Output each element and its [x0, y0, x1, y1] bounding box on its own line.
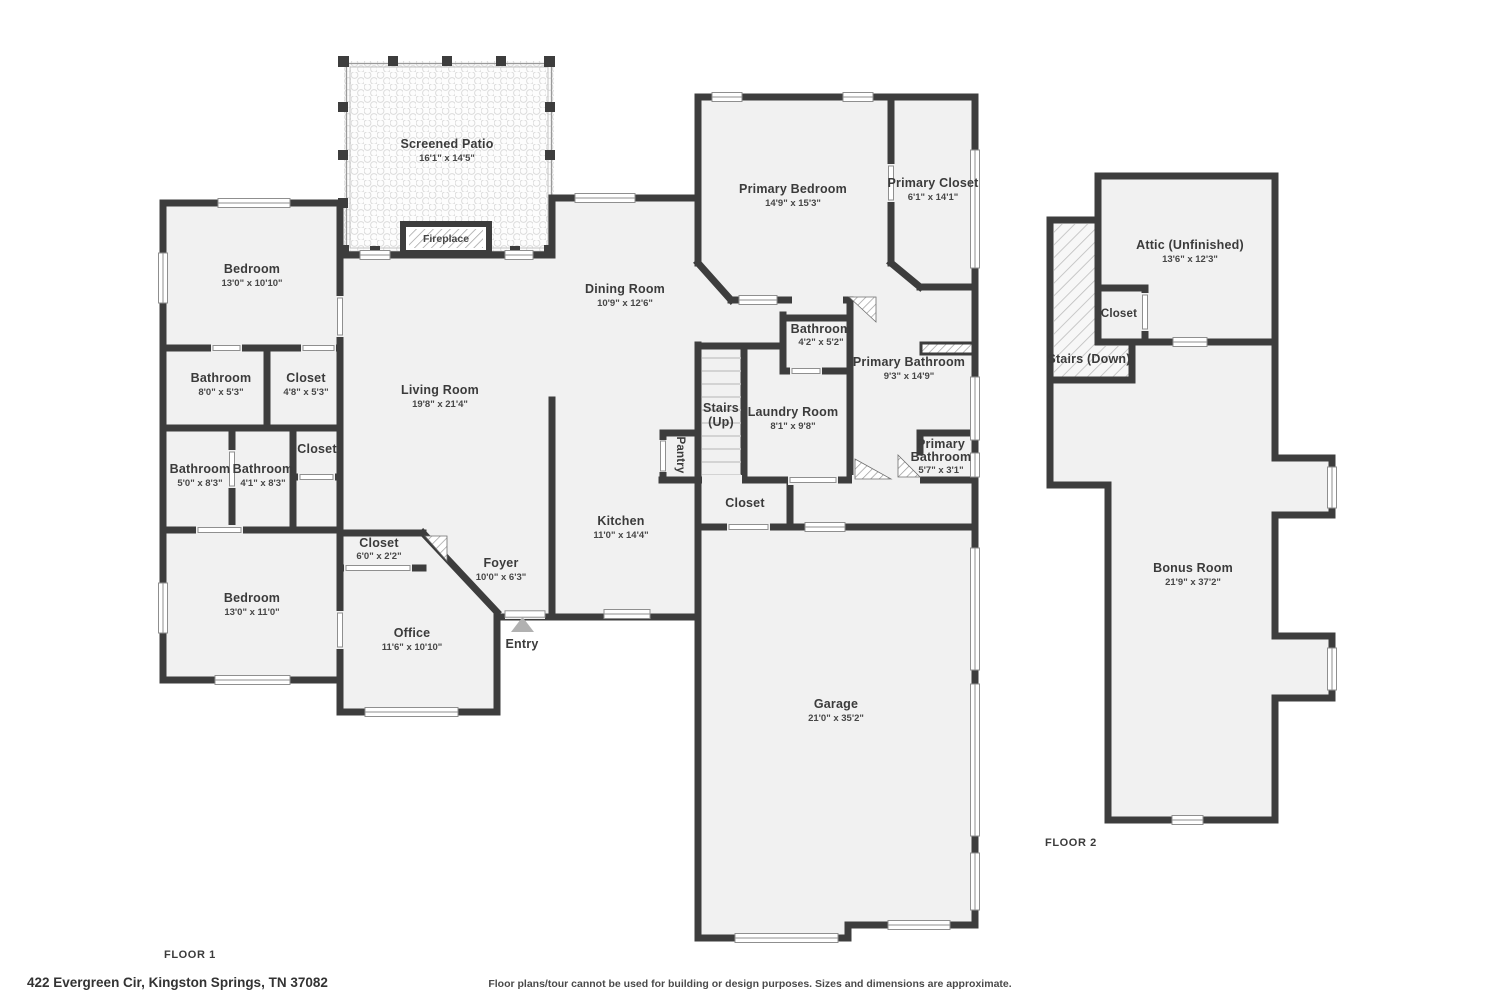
room-label: Dining Room — [585, 282, 665, 296]
room-bathroom-top: Bathroom 8'0" x 5'3" — [191, 371, 252, 398]
room-dims: 5'7" x 3'1" — [918, 465, 963, 476]
room-label: Primary Bathroom — [853, 355, 965, 369]
room-label: Bathroom — [191, 371, 252, 385]
floor1-label: FLOOR 1 — [164, 949, 216, 961]
window — [505, 251, 533, 260]
room-closet-hall: Closet — [725, 496, 765, 510]
window — [805, 523, 845, 532]
room-label: Living Room — [401, 383, 479, 397]
floor-plan-svg: Fireplace Screened Patio 16'1" x 14'5" B… — [0, 0, 1500, 999]
room-dims: 4'1" x 8'3" — [240, 478, 285, 489]
window — [712, 93, 742, 102]
room-dims: 13'0" x 11'0" — [224, 607, 279, 618]
room-dims: 21'9" x 37'2" — [1165, 577, 1221, 588]
room-dims: 21'0" x 35'2" — [808, 713, 864, 724]
room-dims: 10'0" x 6'3" — [476, 572, 527, 583]
window — [604, 610, 650, 619]
window — [971, 853, 980, 910]
room-dims: 4'2" x 5'2" — [798, 337, 843, 348]
room-closet-floor2: Closet — [1101, 308, 1137, 320]
room-bathroom-left: Bathroom 5'0" x 8'3" — [170, 462, 231, 489]
room-label: Bedroom — [224, 591, 280, 605]
room-dims: 6'0" x 2'2" — [356, 551, 401, 562]
room-bathroom-small: Bathroom 4'2" x 5'2" — [791, 322, 852, 348]
room-stairs-up: Stairs (Up) — [703, 401, 739, 429]
room-dims: 11'6" x 10'10" — [382, 642, 443, 653]
door-opening — [727, 522, 770, 532]
door-opening — [196, 525, 243, 535]
room-dims: 8'1" x 9'8" — [770, 421, 815, 432]
entry-label-group: Entry — [506, 637, 539, 651]
door-opening — [344, 563, 412, 573]
fireplace-label: Fireplace — [423, 233, 469, 245]
room-closet-top: Closet 4'8" x 5'3" — [283, 371, 328, 398]
door-opening — [298, 472, 335, 482]
floor2-plan: Attic (Unfinished) 13'6" x 12'3" Closet … — [1047, 176, 1336, 825]
room-living-room: Living Room 19'8" x 21'4" — [401, 383, 479, 410]
room-dims: 14'9" x 15'3" — [765, 198, 821, 209]
room-dims: 16'1" x 14'5" — [419, 153, 475, 164]
stairs-label: Stairs — [703, 401, 739, 415]
shower-pan — [921, 343, 973, 354]
room-label: Screened Patio — [400, 137, 493, 151]
property-address: 422 Evergreen Cir, Kingston Springs, TN … — [27, 975, 328, 990]
room-closet-mid: Closet — [297, 442, 337, 456]
fireplace: Fireplace — [403, 224, 489, 253]
floor2-label: FLOOR 2 — [1045, 837, 1097, 849]
room-label: Attic (Unfinished) — [1136, 238, 1244, 252]
window — [888, 921, 950, 930]
room-label: Bedroom — [224, 262, 280, 276]
window — [1328, 648, 1337, 690]
door-opening — [301, 343, 336, 353]
room-kitchen: Kitchen 11'0" x 14'4" — [593, 514, 648, 541]
room-label: Closet — [725, 496, 765, 510]
window — [971, 453, 980, 477]
door-opening — [788, 475, 838, 485]
floor1-plan: Fireplace Screened Patio 16'1" x 14'5" B… — [159, 56, 980, 943]
window — [360, 251, 390, 260]
window — [1172, 816, 1203, 825]
window — [159, 253, 168, 303]
stairs-down-label: Stairs (Down) — [1047, 352, 1130, 366]
door-opening — [702, 475, 742, 485]
room-label: Laundry Room — [748, 405, 839, 419]
entry-label: Entry — [506, 637, 539, 651]
room-garage: Garage 21'0" x 35'2" — [808, 697, 864, 724]
room-label: Bathroom — [170, 462, 231, 476]
room-label: Bathroom — [791, 322, 852, 336]
door-opening — [335, 611, 345, 649]
entry-door — [505, 609, 545, 619]
room-label: Closet — [359, 536, 399, 550]
room-dims: 8'0" x 5'3" — [198, 387, 243, 398]
room-primary-wc: Primary Bathroom 5'7" x 3'1" — [911, 437, 972, 476]
room-label: Primary Bedroom — [739, 182, 847, 196]
window — [735, 934, 838, 943]
room-dims: 13'0" x 10'10" — [221, 278, 282, 289]
door-opening — [792, 295, 843, 305]
window — [971, 377, 980, 440]
room-closet-office: Closet 6'0" x 2'2" — [356, 536, 401, 562]
door-opening — [335, 296, 345, 337]
room-label: Closet — [286, 371, 326, 385]
disclaimer-text: Floor plans/tour cannot be used for buil… — [488, 978, 1011, 990]
room-bathroom-mid: Bathroom 4'1" x 8'3" — [233, 462, 294, 489]
room-dims: 11'0" x 14'4" — [593, 530, 648, 541]
window — [218, 199, 290, 208]
room-pantry: Pantry — [674, 437, 686, 474]
window — [843, 93, 873, 102]
window — [1328, 467, 1337, 508]
room-dims: 6'1" x 14'1" — [908, 192, 959, 203]
room-dims: 13'6" x 12'3" — [1162, 254, 1218, 265]
room-label: Office — [394, 626, 431, 640]
door-opening — [211, 343, 242, 353]
room-label: Garage — [814, 697, 858, 711]
room-label: Bonus Room — [1153, 561, 1233, 575]
window — [575, 194, 635, 203]
room-label: Kitchen — [597, 514, 644, 528]
room-dims: 4'8" x 5'3" — [283, 387, 328, 398]
room-bedroom-top: Bedroom 13'0" x 10'10" — [221, 262, 282, 289]
floor1-footprint — [163, 97, 975, 938]
door-opening — [658, 440, 668, 472]
room-label: Bathroom — [233, 462, 294, 476]
pantry-label: Pantry — [674, 437, 686, 474]
door-opening — [1140, 293, 1150, 331]
window — [159, 583, 168, 633]
room-bedroom-bottom: Bedroom 13'0" x 11'0" — [224, 591, 280, 618]
room-label-2: Bathroom — [911, 450, 972, 464]
door-opening — [790, 366, 822, 376]
window — [365, 708, 458, 717]
window — [971, 684, 980, 836]
room-dims: 5'0" x 8'3" — [177, 478, 222, 489]
window — [739, 296, 777, 305]
window — [215, 676, 290, 685]
room-dims: 10'9" x 12'6" — [597, 298, 653, 309]
window — [971, 150, 980, 268]
window — [1173, 338, 1207, 347]
room-label: Foyer — [483, 556, 518, 570]
room-label: Primary — [917, 437, 965, 451]
room-stairs-down: Stairs (Down) — [1047, 352, 1130, 366]
room-label: Closet — [1101, 308, 1137, 320]
stairs-label-2: (Up) — [708, 415, 734, 429]
window — [971, 548, 980, 670]
room-label: Closet — [297, 442, 337, 456]
room-dims: 19'8" x 21'4" — [412, 399, 468, 410]
floor2-doors — [1140, 293, 1150, 331]
floor-plan-page: Fireplace Screened Patio 16'1" x 14'5" B… — [0, 0, 1500, 999]
room-label: Primary Closet — [887, 176, 979, 190]
room-dims: 9'3" x 14'9" — [884, 371, 935, 382]
